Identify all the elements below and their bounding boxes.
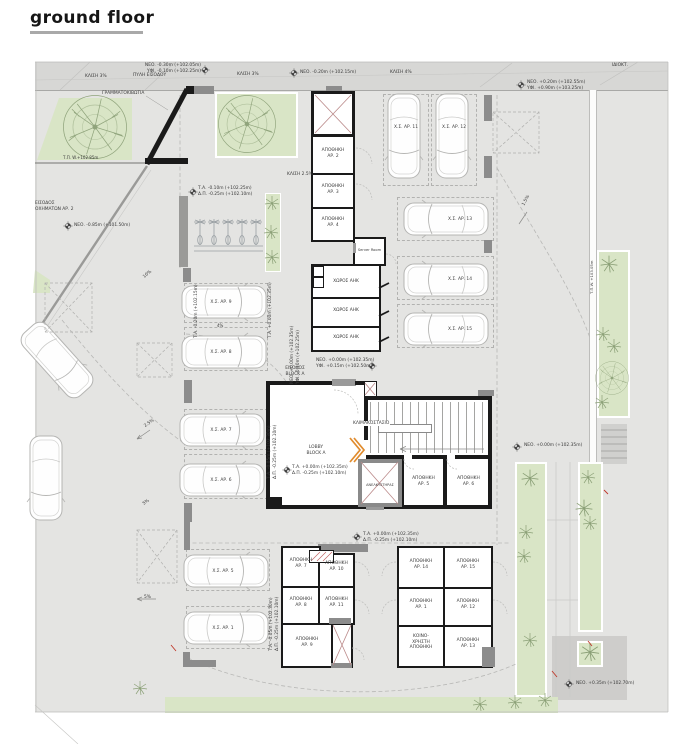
level-label: Τ.Α. +0.00m (+102.35m)Δ.Π. -0.25m (+102.… [363,532,419,543]
tree-icon [64,96,127,159]
shaft-x-icon [311,95,398,665]
level-marker-icon [282,465,291,474]
gate-diagonal-wall [147,89,187,164]
room-label-storage-12: ΑΠΟΘΗΚΗΑΡ. 12 [443,599,493,610]
vehicle-entrance-label: ΕΙΣΟΔΟΣΟΧΗΜΑΤΩΝ ΑΡ. 2 [35,201,74,212]
bike-rack-icons [194,219,263,251]
level-label: ΝΕΟ. +0.20m (+102.55m)ΥΦΙ. +0.90m (+103.… [527,80,585,91]
plan-symbols-layer [0,0,694,744]
room-label-storage-15: ΑΠΟΘΗΚΗΑΡ. 15 [443,559,493,570]
level-label: Τ.Π. W.+102.85m [63,155,98,160]
room-label-storage-14: ΑΠΟΘΗΚΗΑΡ. 14 [397,559,445,570]
lobby-orange-door [350,438,364,462]
level-marker-icon [200,65,209,74]
room-label-storage-6: ΑΠΟΘΗΚΗΑΡ. 6 [445,476,492,487]
slope-label: 5% [144,595,151,601]
tree-icon [596,362,629,395]
slope-label: 4% [217,323,223,328]
parking-label-8: Χ.Σ. ΑΡ. 8 [198,350,244,356]
slope-label: ΚΛΙΣΗ 2.5% [287,172,313,178]
block-entrance-label: ΕΙΣΟΔΟΣBLOCK A [281,366,309,377]
car-icon [27,436,65,520]
level-label: Τ.Α. -0.05m (+102.30m)Δ.Π. -0.25m (+102.… [269,597,280,651]
parking-label-12: Χ.Σ. ΑΡ. 12 [431,125,477,131]
car-icon [433,94,471,178]
room-label-stairs: ΚΛΙΜΑΚΟΣΤΑΣΙΟ [352,421,390,427]
room-label-lobby: LOBBYBLOCK A [296,445,336,456]
parking-label-1: Χ.Σ. ΑΡ. 1 [200,626,246,632]
room-label-ahk-1: ΧΩΡΟΣ ΑΗΚ [311,279,381,285]
room-label-ahk-2: ΧΩΡΟΣ ΑΗΚ [311,308,381,314]
car-icon [15,316,99,404]
slope-label: ΚΛΙΣΗ 3% [85,74,107,80]
level-marker-icon [516,80,525,89]
room-label-storage-1: ΑΠΟΘΗΚΗΑΡ. 1 [397,599,445,610]
room-label-ahk-3: ΧΩΡΟΣ ΑΗΚ [311,335,381,341]
level-label: Τ.Α. -0.20m (+102.15m) [194,284,200,338]
slope-label: ΚΛΙΣΗ 3% [237,72,259,78]
room-label-storage-4: ΑΠΟΘΗΚΗΑΡ. 4 [311,217,355,228]
level-marker-icon [352,532,361,541]
room-label-lift: ΑΝΕΛΚΥΣΤΗΡΑΣ [358,483,402,488]
level-label: ΝΕΟ. -0.30m (+102.05m)ΥΦΙ. -0.10m (+102.… [133,63,201,74]
parking-label-14: Χ.Σ. ΑΡ. 14 [430,277,490,283]
level-marker-icon [63,221,72,230]
level-label: Τ.Α. -0.10m (+102.25m)Δ.Π. -0.25m (+102.… [198,186,252,197]
room-label-common-storage: ΚΟΙΝΟ-ΧΡΗΣΤΗΑΠΟΘΗΚΗ [397,634,445,651]
level-marker-icon [289,68,298,77]
parking-label-9: Χ.Σ. ΑΡ. 9 [198,300,244,306]
level-label: ΝΕΟ. -0.20m (+102.15m) [300,70,356,76]
room-label-storage-11: ΑΠΟΘΗΚΗΑΡ. 11 [318,597,355,608]
level-label: Τ.Α. +0.00m (+102.35m) [268,282,274,338]
stair-direction-arrow [400,446,484,451]
parking-label-15: Χ.Σ. ΑΡ. 15 [430,327,490,333]
parking-label-5: Χ.Σ. ΑΡ. 5 [200,569,246,575]
level-marker-icon [188,187,197,196]
level-label: ΝΕΟ. +0.00m (+102.35m) [524,443,582,449]
parking-label-7: Χ.Σ. ΑΡ. 7 [198,428,244,434]
level-marker-icon [564,679,573,688]
slope-label: ΚΛΙΣΗ 4% [390,70,412,76]
room-label-storage-7: ΑΠΟΘΗΚΗΑΡ. 7 [281,558,321,569]
room-label-storage-3: ΑΠΟΘΗΚΗΑΡ. 3 [311,184,355,195]
parking-label-11: Χ.Σ. ΑΡ. 11 [383,125,429,131]
level-label: Τ.Π.W. +103.05m [590,261,595,295]
level-label: ΝΕΟ. -0.85m (+101.50m) [74,223,130,229]
room-label-storage-9: ΑΠΟΘΗΚΗΑΡ. 9 [281,637,333,648]
level-label: ΝΕΟ. +0.35m (+102.70m) [576,681,634,687]
tree-icon [219,96,276,153]
level-marker-icon [512,442,521,451]
parking-label-6: Χ.Σ. ΑΡ. 6 [198,478,244,484]
room-label-storage-5: ΑΠΟΘΗΚΗΑΡ. 5 [402,476,445,487]
room-label-storage-8: ΑΠΟΘΗΚΗΑΡ. 8 [281,597,321,608]
level-label: Τ.Α. -0.05m (+102.30m)Δ.Π. -0.25m (+102.… [267,425,278,479]
level-label: Τ.Α. +0.00m (+102.35m)Δ.Π. -0.25m (+102.… [292,465,348,476]
property-label: ΙΔΙΟΚΤ. [612,63,628,69]
room-label-storage-2: ΑΠΟΘΗΚΗΑΡ. 2 [311,148,355,159]
car-icon [385,94,423,178]
room-label-server: Server Room [353,248,386,253]
floor-plan: ground floor [0,0,694,744]
mailboxes-label: ΓΡΑΜΜΑΤΟΚΙΒΩΤΙΑ [102,91,144,97]
level-label: ΝΕΟ. +0.00m (+102.35m)ΥΦΙ. +0.15m (+102.… [316,358,374,369]
parking-label-13: Χ.Σ. ΑΡ. 13 [430,217,490,223]
room-label-storage-10: ΑΠΟΘΗΚΗΑΡ. 10 [318,561,355,572]
room-label-storage-13: ΑΠΟΘΗΚΗΑΡ. 13 [443,638,493,649]
